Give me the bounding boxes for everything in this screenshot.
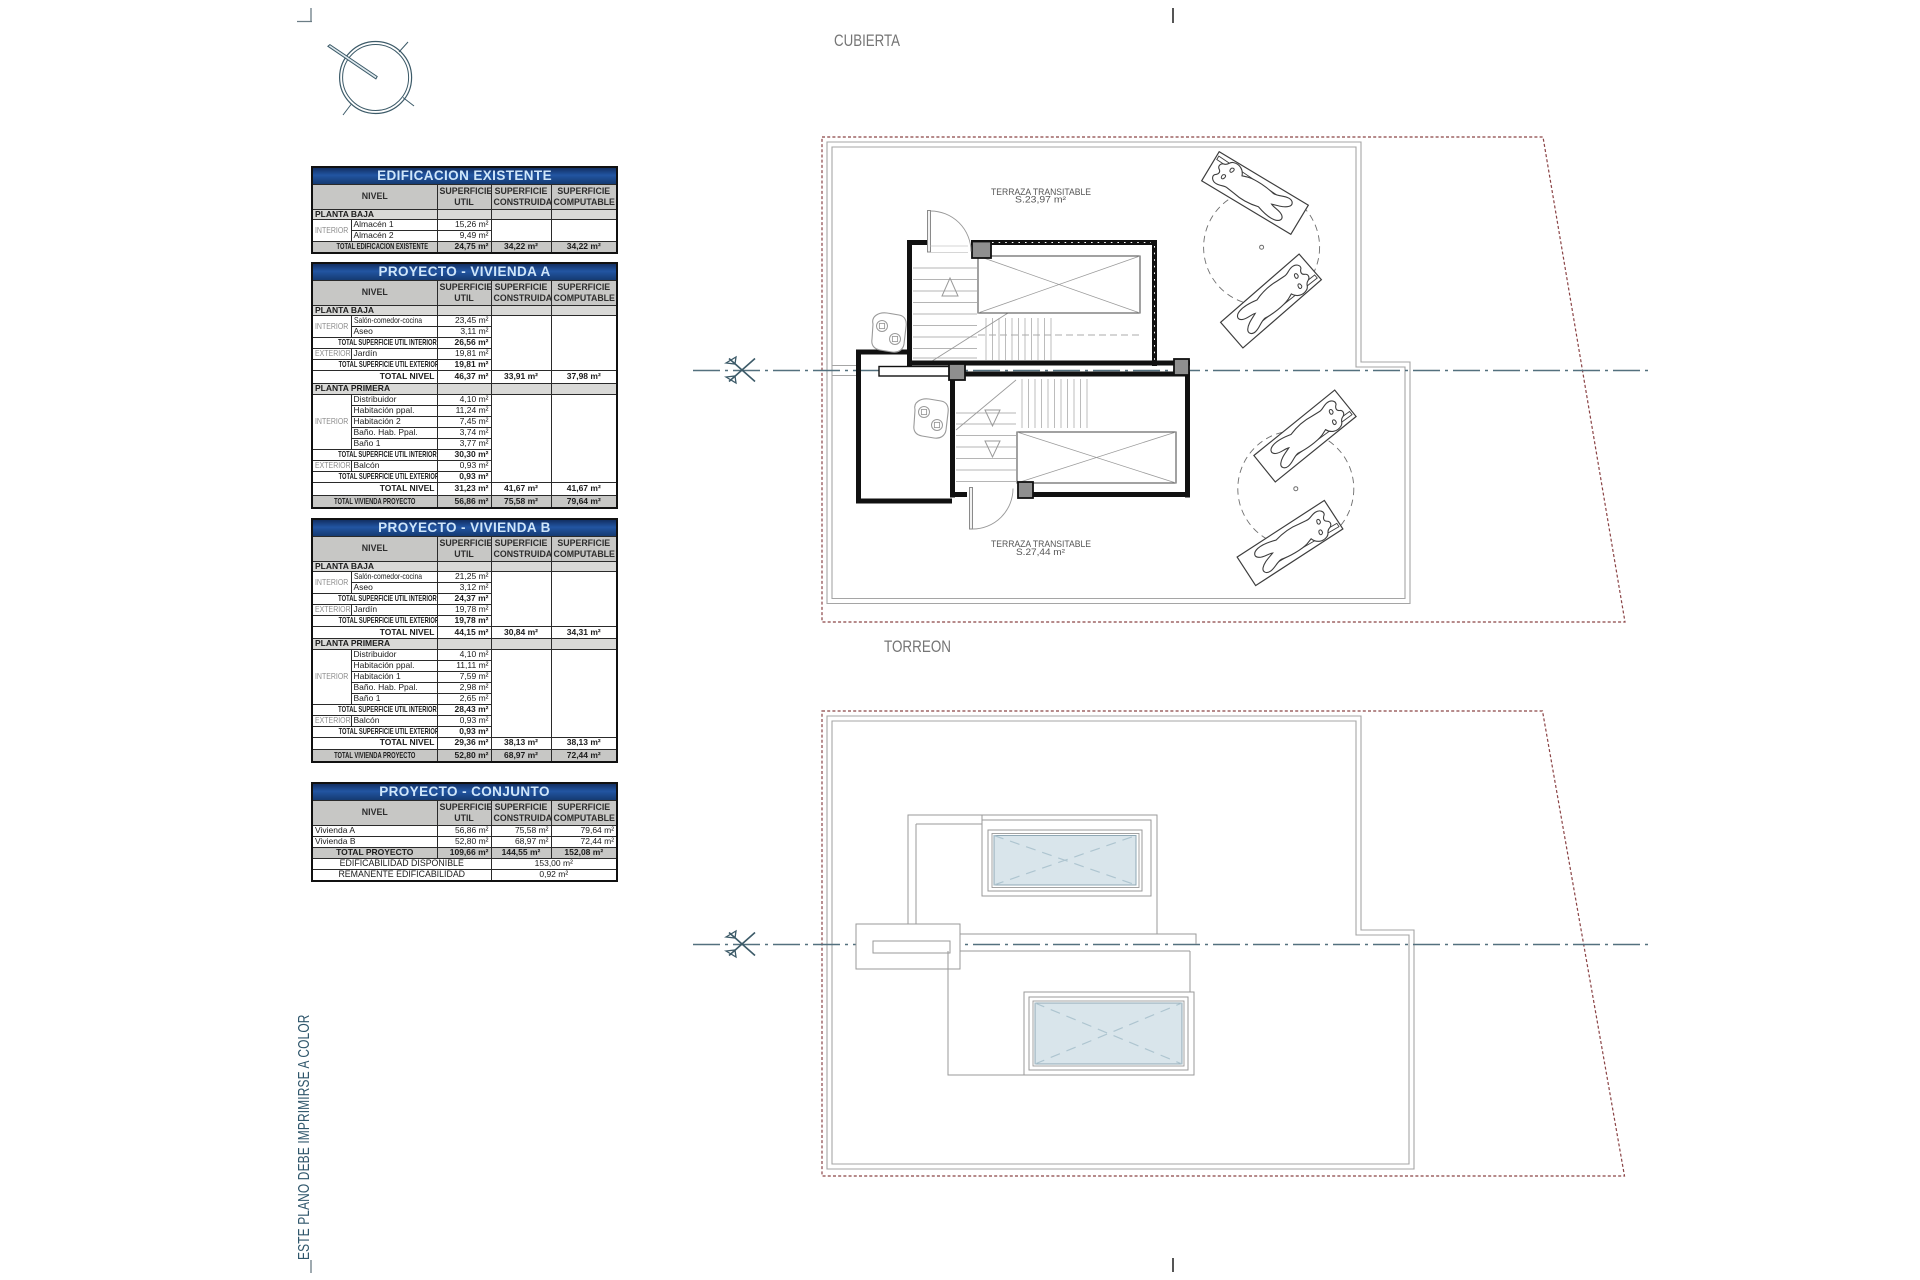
svg-text:S.23,97 m²: S.23,97 m² <box>1015 195 1066 205</box>
svg-text:S.27,44 m²: S.27,44 m² <box>1016 547 1065 557</box>
svg-text:CUBIERTA: CUBIERTA <box>834 31 901 50</box>
svg-text:TORREON: TORREON <box>884 637 951 656</box>
